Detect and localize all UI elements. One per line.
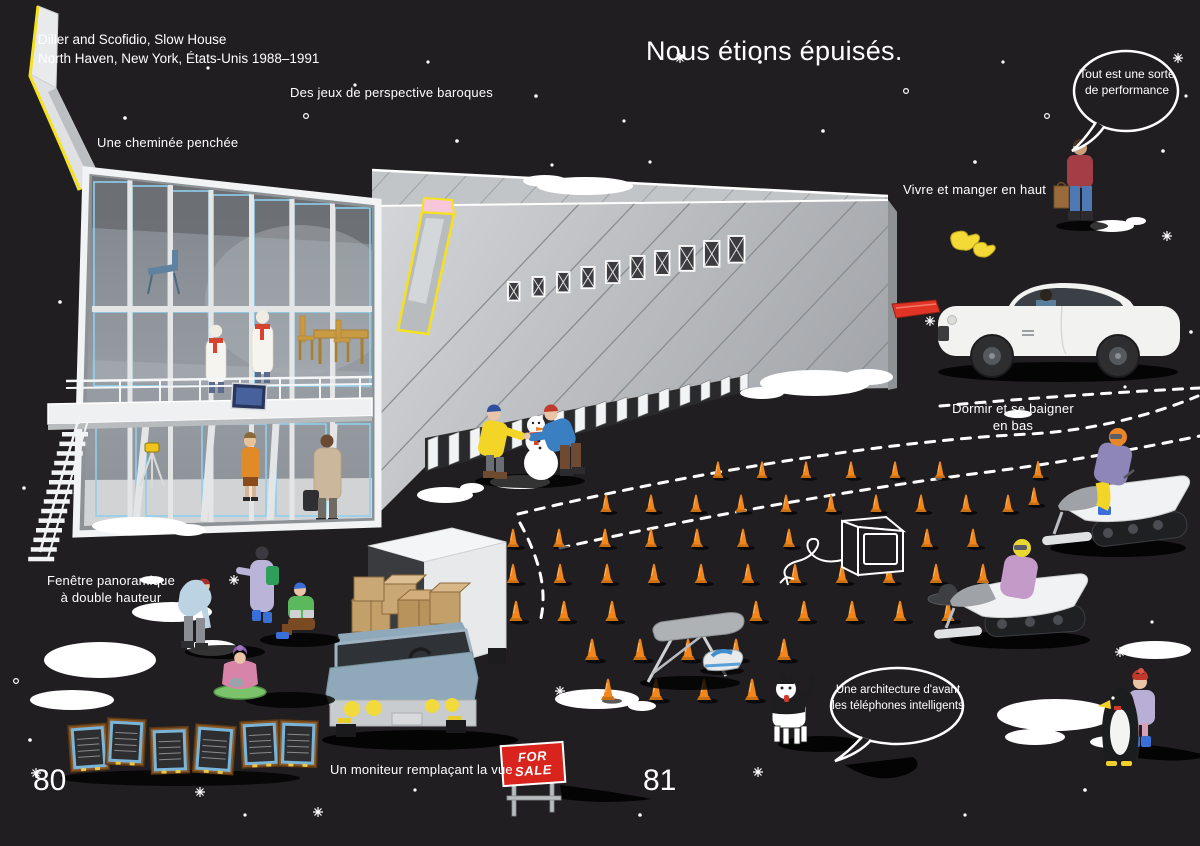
white-car (938, 283, 1180, 382)
bubble-architecture-text: Une architecture d'avant les téléphones … (832, 682, 964, 714)
snowmobile-2 (934, 539, 1090, 649)
figure-lavender-woman (229, 547, 279, 624)
snowmobile-1 (1042, 428, 1190, 557)
for-sale-sign-text: FOR SALE (503, 748, 563, 780)
page-title: Nous étions épuisés. (646, 36, 903, 67)
annotation-downstairs: Dormir et se baigner en bas (948, 400, 1078, 434)
bubble-performance-text: Tout est une sorte de performance (1078, 66, 1176, 98)
tv-on-balcony (231, 383, 266, 410)
book-spread: Diller and Scofidio, Slow House North Ha… (0, 0, 1200, 846)
annotation-window: Fenêtre panoramique à double hauteur (26, 572, 196, 606)
page-number-right: 81 (643, 764, 676, 798)
figure-shopper (1054, 139, 1108, 231)
red-sled (892, 300, 940, 318)
page-number-left: 80 (33, 764, 66, 798)
yellow-gloves (951, 231, 996, 257)
credit-line-1: Diller and Scofidio, Slow House (38, 30, 319, 49)
annotation-chimney: Une cheminée penchée (97, 134, 238, 151)
annotation-monitor: Un moniteur remplaçant la vue (330, 761, 513, 778)
annotation-upstairs: Vivre et manger en haut (903, 181, 1046, 198)
framed-pictures (60, 718, 318, 786)
snow-play-group (178, 547, 340, 709)
clothes-iron (700, 650, 744, 675)
moving-truck (322, 528, 518, 750)
glass-facade (76, 170, 395, 534)
annotation-baroque: Des jeux de perspective baroques (290, 84, 493, 101)
caption-project-credit: Diller and Scofidio, Slow House North Ha… (38, 30, 319, 68)
credit-line-2: North Haven, New York, États-Unis 1988–1… (38, 49, 319, 68)
penguin-and-child (1098, 668, 1200, 766)
